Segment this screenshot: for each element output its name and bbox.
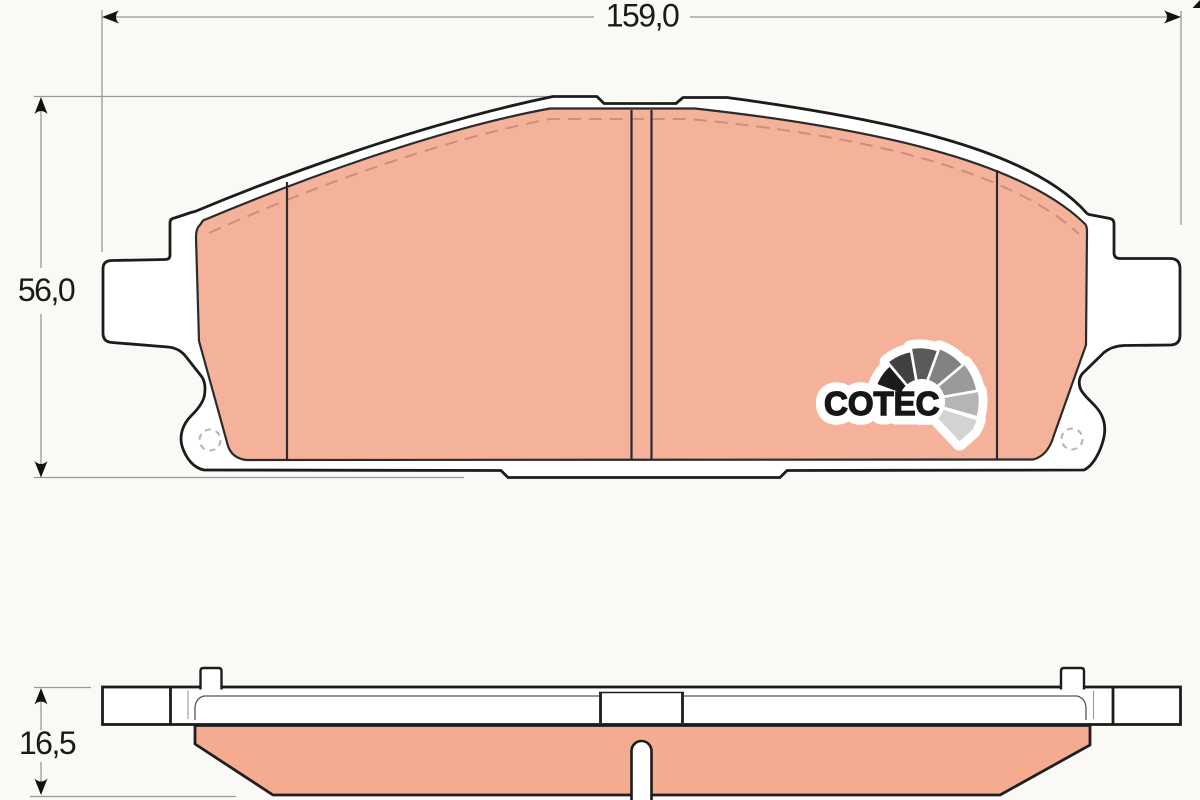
svg-text:159,0: 159,0 bbox=[606, 0, 679, 34]
svg-text:56,0: 56,0 bbox=[18, 272, 75, 308]
svg-text:16,5: 16,5 bbox=[19, 725, 76, 761]
svg-text:COTEC: COTEC bbox=[824, 385, 940, 422]
